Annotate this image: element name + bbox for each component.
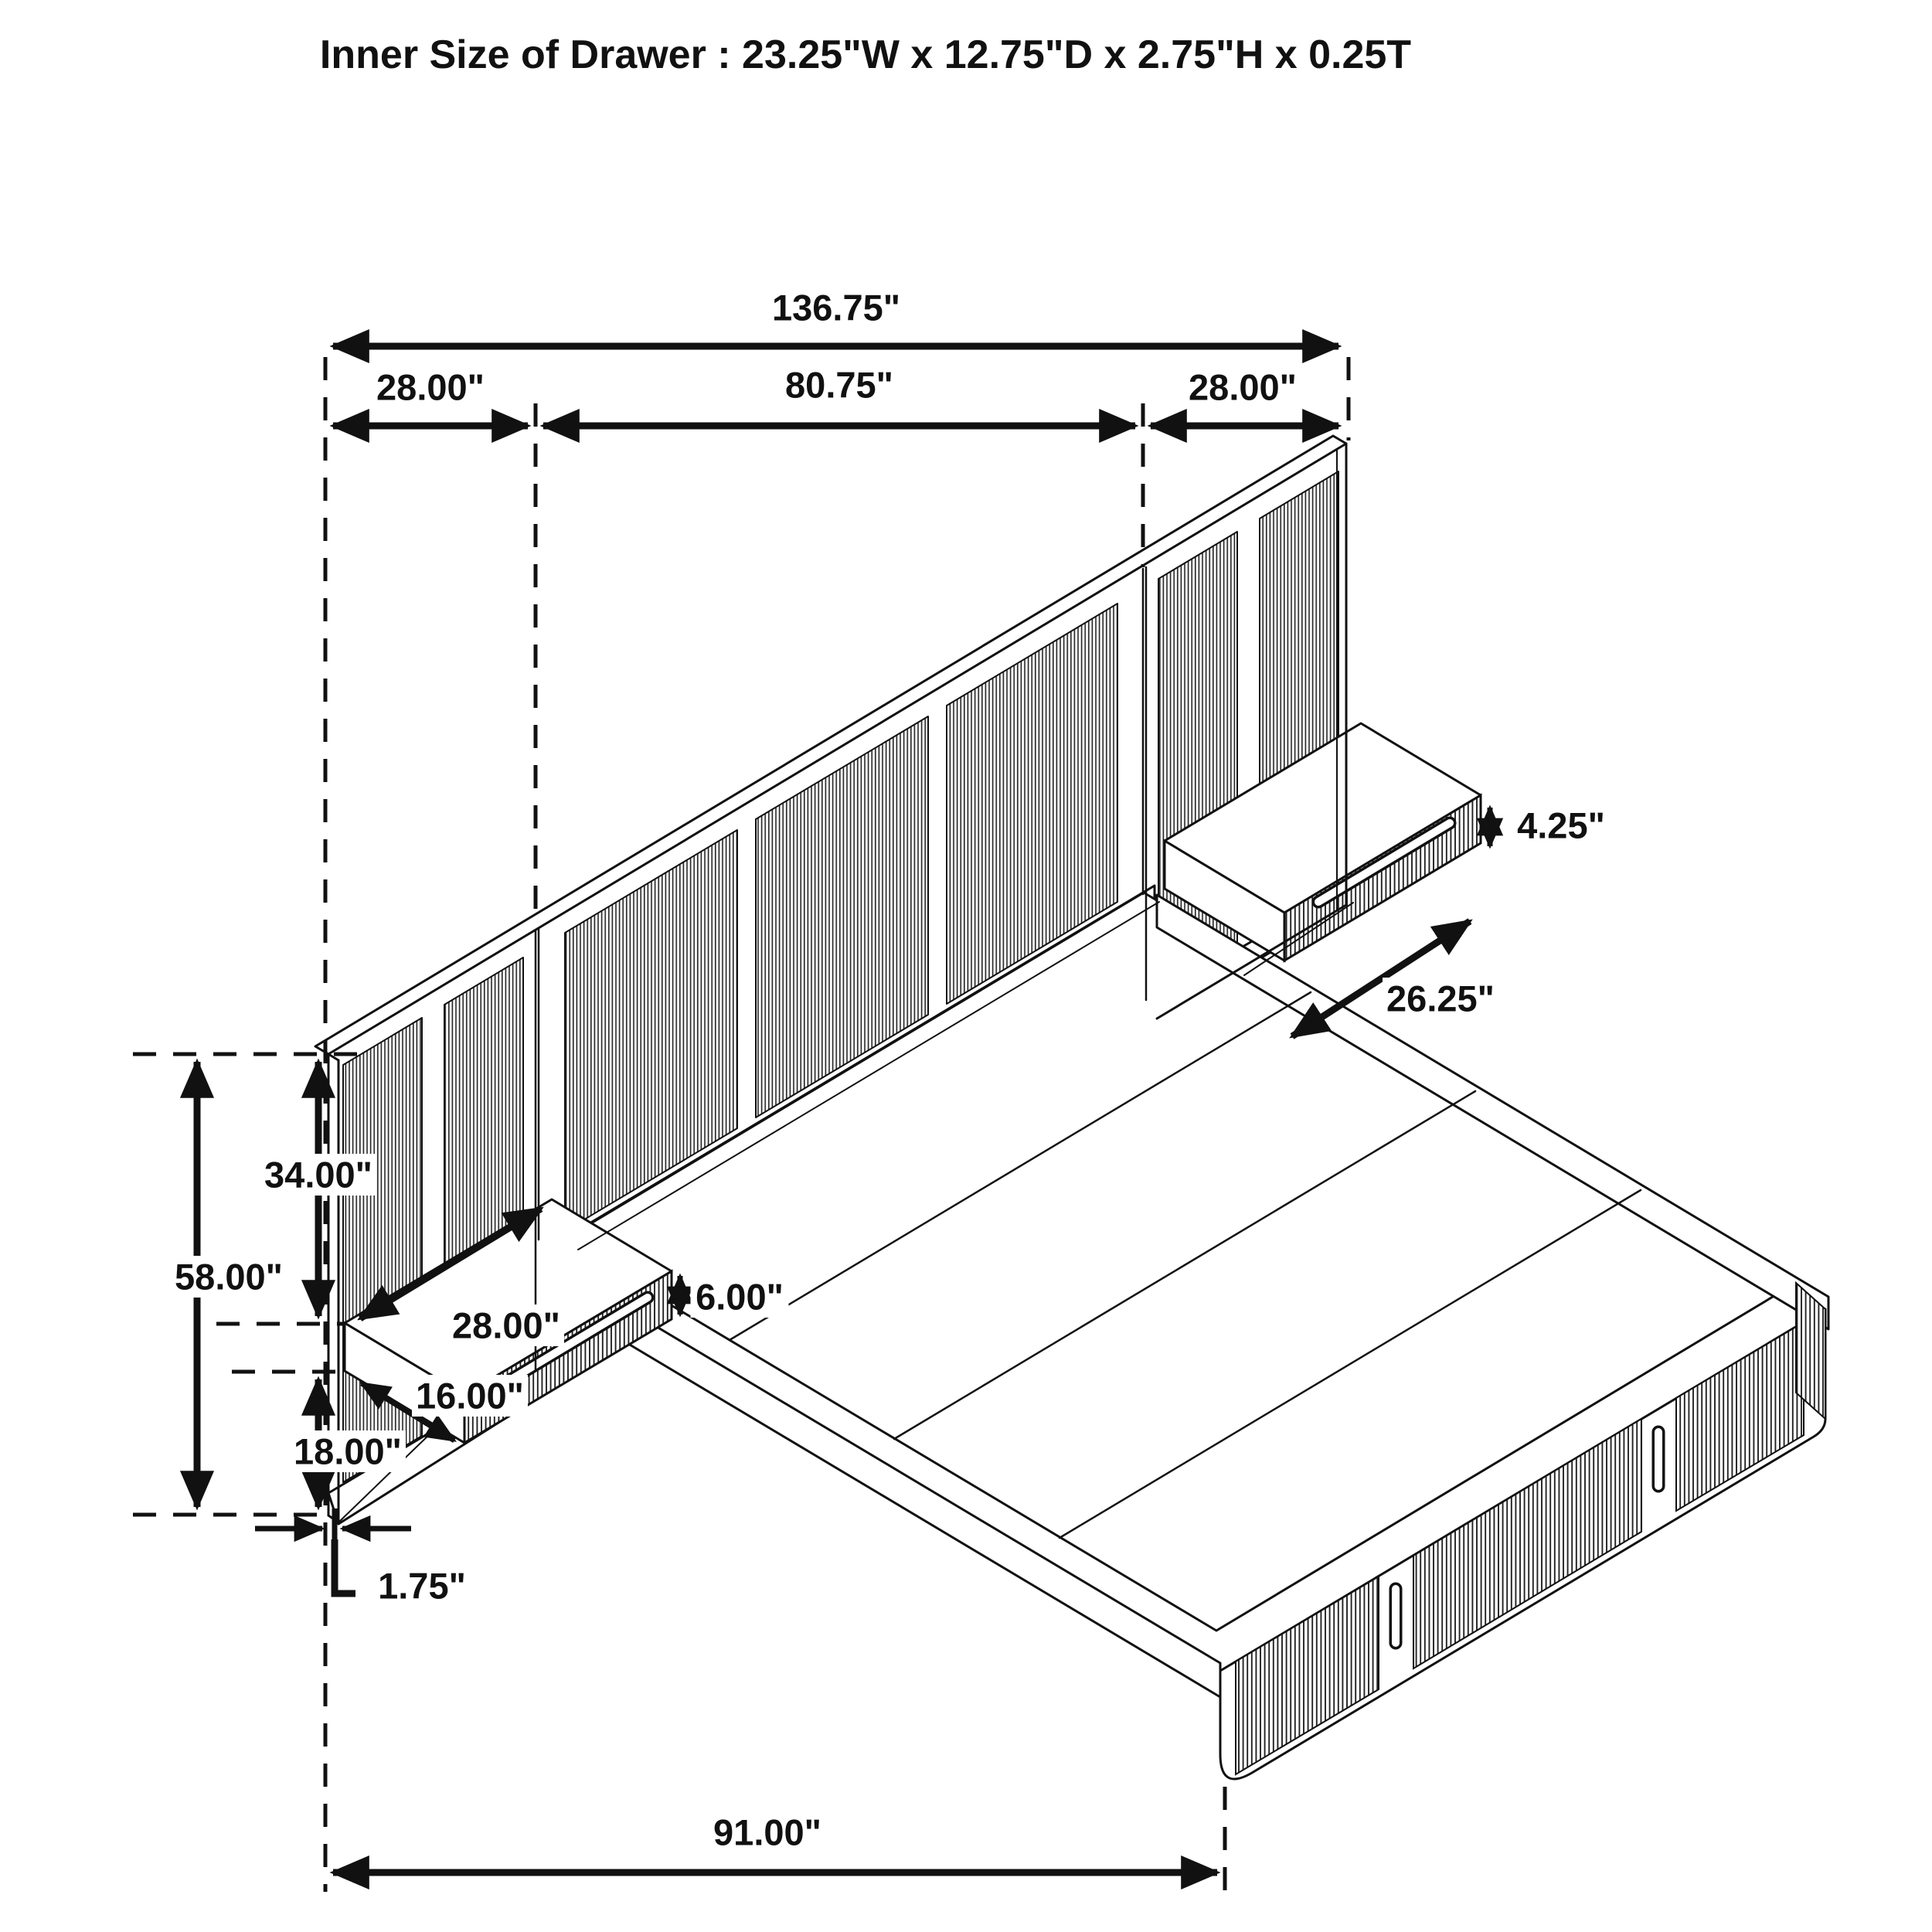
- dim-label-overall_width: 136.75": [772, 287, 900, 328]
- dim-label-right_section: 28.00": [1189, 367, 1297, 408]
- dim-label-panel_thickness: 1.75": [378, 1566, 466, 1607]
- page-title: Inner Size of Drawer : 23.25"W x 12.75"D…: [320, 32, 1411, 77]
- dim-label-right_shelf_length: 26.25": [1386, 978, 1495, 1019]
- drawing-layer: [315, 436, 1828, 1779]
- dim-label-upper_height: 34.00": [264, 1155, 372, 1196]
- dim-label-shelf_width: 28.00": [452, 1305, 560, 1346]
- dim-label-lower_height: 18.00": [294, 1431, 402, 1472]
- dim-label-total_height: 58.00": [175, 1257, 283, 1298]
- dim-label-platform_length: 91.00": [713, 1812, 821, 1853]
- diagram-page: Inner Size of Drawer : 23.25"W x 12.75"D…: [0, 0, 1932, 1932]
- dim-leader-panel_thickness: [335, 1539, 355, 1594]
- dim-label-shelf_height: 6.00": [696, 1277, 784, 1318]
- dim-label-right_shelf_drawer_height: 4.25": [1517, 805, 1605, 846]
- furniture-dimension-figure: Inner Size of Drawer : 23.25"W x 12.75"D…: [0, 0, 1932, 1932]
- dim-label-center_section: 80.75": [785, 365, 893, 406]
- footboard-rib-panel: [1676, 1322, 1804, 1511]
- dim-label-left_section: 28.00": [376, 367, 485, 408]
- dim-label-shelf_depth: 16.00": [416, 1376, 524, 1417]
